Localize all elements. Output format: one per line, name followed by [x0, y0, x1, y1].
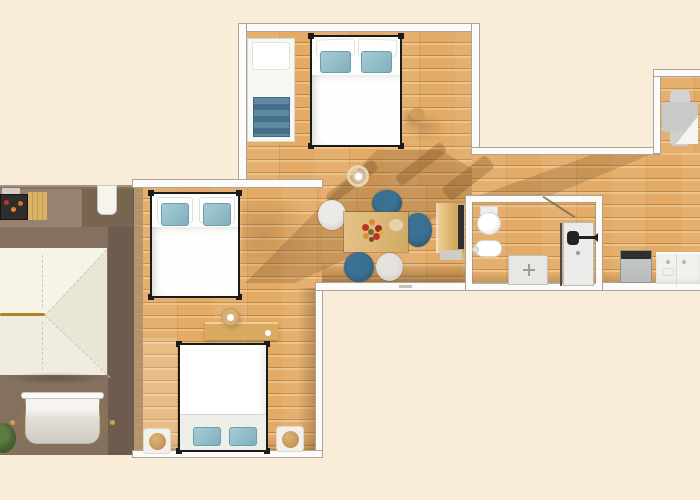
teal-pillow: [320, 51, 351, 73]
bed-post: [398, 33, 404, 39]
wall: [654, 72, 660, 153]
bed-post: [236, 190, 242, 196]
bedside-mat: [276, 426, 304, 452]
side-stool: [410, 108, 425, 120]
duvet: [312, 75, 400, 145]
bulb-icon: [227, 314, 234, 321]
cabinet-base: [440, 250, 462, 260]
burner-icon: [18, 201, 23, 206]
wall: [472, 24, 479, 153]
bidet: [475, 240, 502, 257]
drain-cross-icon: [528, 264, 530, 276]
double-bed: [150, 192, 240, 298]
roof-hip-line: [42, 322, 43, 370]
roof-shadow: [4, 372, 108, 384]
sideboard: [205, 322, 278, 340]
canopy-roof: [0, 248, 107, 375]
bed-post: [148, 190, 154, 196]
flower-bouquet: [360, 216, 390, 246]
door-closer-arm: [579, 236, 595, 239]
hammock: [13, 392, 112, 450]
counter-seam: [676, 254, 677, 286]
ceiling-light: [221, 308, 239, 326]
partition-wall: [560, 223, 562, 286]
sink-counter: [656, 252, 700, 284]
wall: [239, 24, 479, 31]
teal-pillow: [361, 51, 392, 73]
shower-tray: [508, 255, 548, 285]
wall: [472, 148, 660, 154]
wall: [316, 283, 472, 290]
burner-icon: [4, 200, 9, 205]
hammock-bar: [21, 392, 104, 399]
duvet: [180, 345, 266, 415]
roof-hip-line: [42, 255, 43, 307]
pendant-lamp: [347, 165, 369, 187]
dishwasher: [620, 250, 652, 283]
faucet-icon: [472, 246, 479, 253]
blue-blanket: [253, 97, 290, 137]
door-handle: [567, 231, 579, 245]
roof-ridge: [0, 313, 45, 316]
pouf: [149, 433, 166, 450]
flower-dot: [379, 230, 384, 235]
faucet-icon: [666, 260, 670, 264]
barbecue: [0, 194, 28, 220]
dining-table: [344, 212, 408, 252]
wall: [239, 24, 246, 181]
door-hinge: [576, 251, 580, 255]
single-daybed: [247, 38, 295, 142]
terrace-fence: [133, 185, 143, 453]
bed-post: [308, 33, 314, 39]
bathroom-door: [563, 222, 594, 286]
grey-chair: [376, 253, 403, 281]
dark-chair: [404, 213, 432, 247]
terrace-door: [97, 185, 117, 215]
teal-pillow: [229, 427, 257, 446]
duvet: [152, 227, 238, 296]
floor-plan: [0, 0, 700, 500]
plate: [388, 218, 404, 232]
lamp-glow: [355, 173, 362, 180]
pouf: [282, 431, 299, 448]
door-handle-mark: [399, 285, 412, 288]
bedside-mat: [143, 428, 171, 454]
teal-pillow: [161, 203, 189, 226]
double-bed: [178, 343, 268, 452]
hammock-hook: [10, 420, 15, 425]
double-bed: [310, 35, 402, 147]
burner-icon: [11, 207, 16, 212]
terrace: [0, 185, 133, 455]
grey-chair: [318, 200, 346, 230]
knob: [265, 330, 271, 336]
hammock-fabric: [25, 396, 100, 444]
pillow: [252, 42, 290, 70]
toilet: [477, 212, 501, 235]
cabinet: [438, 203, 464, 253]
teal-pillow: [203, 203, 231, 226]
faucet-icon: [682, 260, 686, 264]
stem-dot: [369, 237, 374, 242]
flower-dot: [369, 219, 375, 225]
wall: [316, 288, 322, 453]
cabinet-door-edge: [458, 205, 464, 249]
teal-pillow: [193, 427, 221, 446]
wall: [133, 180, 322, 187]
hammock-hook: [110, 420, 115, 425]
wood-table: [28, 192, 47, 220]
wall: [654, 70, 700, 76]
dark-chair: [344, 252, 374, 282]
sink-basin: [662, 268, 674, 276]
